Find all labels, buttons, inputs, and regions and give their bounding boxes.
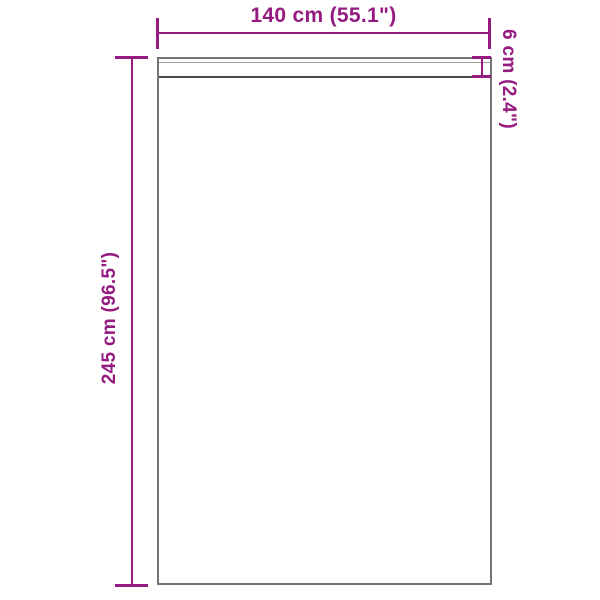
width-dimension-tick-right xyxy=(488,18,491,49)
height-dimension-line xyxy=(131,57,133,586)
width-dimension-line xyxy=(157,32,490,34)
rod-pocket-fold-line xyxy=(159,62,490,63)
width-dimension-label: 140 cm (55.1") xyxy=(157,4,490,28)
rod-pocket-seam-line xyxy=(159,76,490,78)
height-dimension-label: 245 cm (96.5") xyxy=(99,252,121,385)
width-dimension-tick-left xyxy=(156,18,159,49)
header-dimension-label: 6 cm (2.4") xyxy=(497,29,519,129)
header-dimension-tick-top xyxy=(472,56,491,59)
curtain-panel-outline xyxy=(157,57,492,585)
curtain-dimension-diagram: 140 cm (55.1") 245 cm (96.5") 6 cm (2.4"… xyxy=(0,0,600,600)
height-dimension-tick-top xyxy=(115,56,148,59)
header-dimension-tick-bottom xyxy=(472,75,491,78)
height-dimension-tick-bottom xyxy=(115,584,148,587)
